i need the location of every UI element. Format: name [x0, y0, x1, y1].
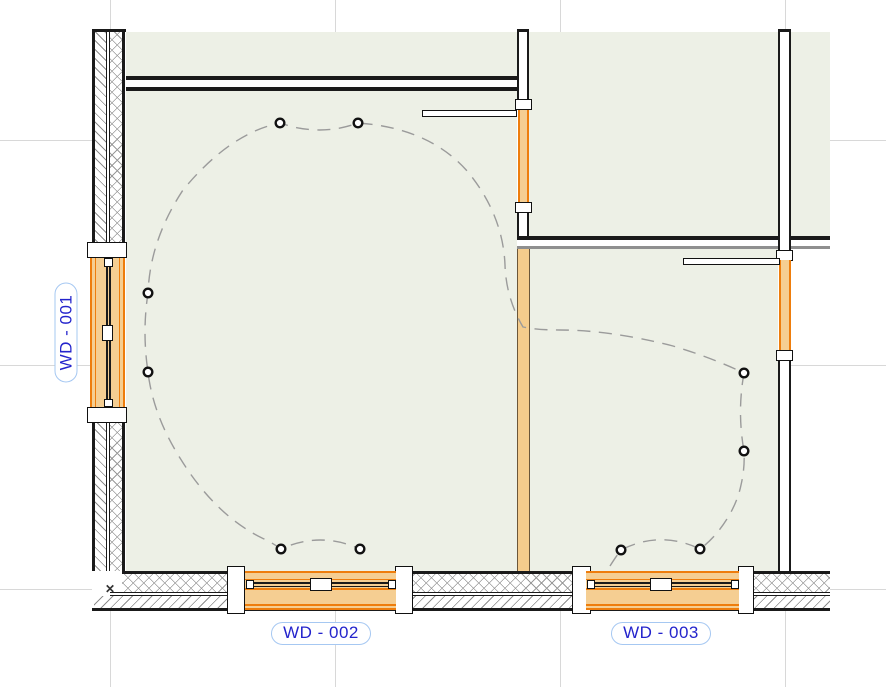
- light-fixture-symbol[interactable]: [696, 545, 705, 554]
- light-fixture-symbol[interactable]: [617, 546, 626, 555]
- light-fixture-symbol[interactable]: [740, 369, 749, 378]
- light-fixture-symbol[interactable]: [356, 545, 365, 554]
- wiring-overlay: [0, 0, 886, 687]
- light-fixture-symbol[interactable]: [144, 289, 153, 298]
- light-fixture-symbol[interactable]: [276, 119, 285, 128]
- light-fixture-symbol[interactable]: [354, 119, 363, 128]
- wiring-path[interactable]: [145, 123, 744, 566]
- light-fixture-symbol[interactable]: [144, 368, 153, 377]
- light-fixture-symbol[interactable]: [277, 545, 286, 554]
- light-fixture-symbol[interactable]: [740, 447, 749, 456]
- floor-plan-canvas: ✕: [0, 0, 886, 687]
